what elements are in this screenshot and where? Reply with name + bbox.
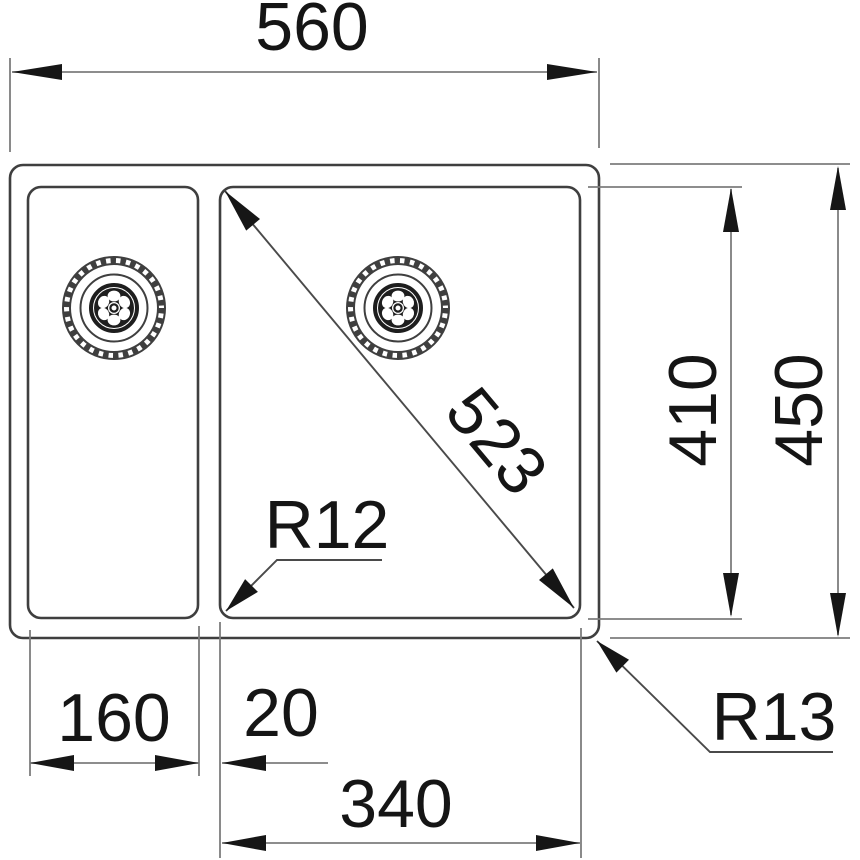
arrowhead-top-left [225,191,260,231]
dim-gap: 20 [220,622,328,858]
callout-bowl-corner-radius: R12 [226,487,389,611]
dim-gap-label: 20 [243,675,319,751]
drawing-canvas: 560 410 450 523 160 20 [0,0,860,860]
sink-dimension-diagram: 560 410 450 523 160 20 [0,0,860,860]
left-bowl-outline [28,187,198,618]
dim-bowl-depth: 410 [588,187,742,619]
arrowhead-left [12,64,62,80]
dim-main-bowl-width-label: 340 [339,766,452,842]
dim-left-bowl-width-label: 160 [57,680,170,756]
dim-overall-width-label: 560 [255,0,368,65]
dim-overall-depth-label: 450 [761,353,837,466]
dim-diagonal-label: 523 [431,373,562,509]
arrowhead-bottom [723,573,739,617]
callout-outer-corner-radius: R13 [597,641,836,755]
arrowhead-bottom-right [539,568,574,608]
arrowhead-right [536,835,580,851]
bowl-corner-radius-label: R12 [265,487,390,563]
arrowhead-top [723,188,739,232]
dim-overall-width: 560 [10,0,599,152]
arrowhead-right [547,64,597,80]
dim-left-bowl-width: 160 [30,626,199,776]
arrowhead-top [830,166,846,210]
dim-bowl-depth-label: 410 [655,353,731,466]
arrowhead-left [30,755,74,771]
main-drain-icon [347,257,449,359]
outer-corner-radius-label: R13 [712,679,837,755]
arrowhead-left [222,755,266,771]
arrowhead-bottom [830,593,846,637]
arrowhead-left [222,835,266,851]
left-drain-icon [63,257,165,359]
arrowhead-right [155,755,199,771]
